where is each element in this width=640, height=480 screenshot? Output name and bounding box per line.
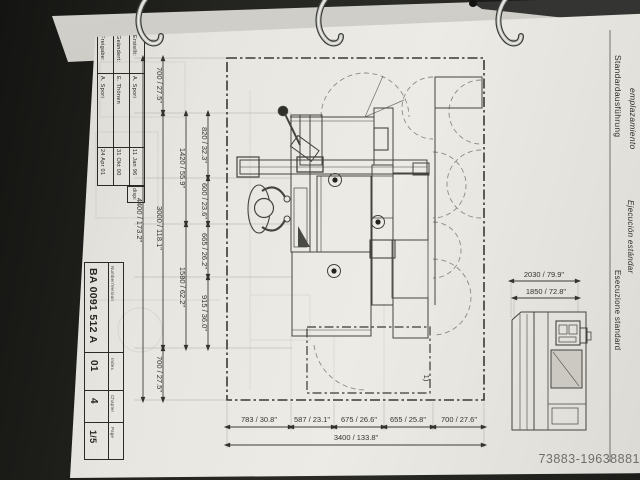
- punch-hole: [469, 0, 477, 7]
- dim-label-1420: 1420 / 55.9": [178, 148, 187, 189]
- document-number-label: Number/Version: [110, 266, 115, 301]
- dim-label-700-top: 700 / 27.5": [155, 67, 164, 103]
- dim-label-587: 587 / 23.1": [294, 415, 330, 424]
- subtitle-es: Ejecución estándar: [626, 200, 635, 273]
- rev-name-erstellt: A. Spori: [131, 76, 137, 98]
- machine-elevation: [512, 312, 591, 430]
- dim-label-675: 675 / 26.6": [341, 415, 377, 424]
- index-value: 01: [88, 360, 99, 372]
- operator-figure: [248, 185, 290, 233]
- dim-label-915: 915 / 36.0": [200, 295, 209, 331]
- rev-label-geaendert: Geändert:: [115, 35, 121, 62]
- rev-label-freigabe: Freigabe:: [99, 35, 105, 61]
- dim-label-700w: 700 / 27.6": [441, 415, 477, 424]
- rev-note: dispi: [131, 188, 137, 200]
- rev-name-geaendert: E. Thönen: [115, 76, 121, 104]
- dim-label-3400: 3400 / 133.8": [334, 433, 379, 442]
- title-de: Standardausführung: [613, 55, 623, 137]
- subtitle-it: Esecuzione standard: [613, 270, 622, 350]
- page-label: Page: [110, 427, 115, 438]
- chapter-value: 4: [88, 398, 99, 404]
- dimension-labels-horizontal: 783 / 30.8" 587 / 23.1" 675 / 26.6" 655 …: [241, 270, 566, 442]
- page-value: 1/5: [88, 430, 98, 443]
- dim-label-1580: 1580 / 62.2": [178, 267, 187, 308]
- door-swing-arcs: [314, 73, 481, 390]
- index-label: Index: [110, 358, 115, 370]
- rev-date-geaendert: 31 Okt 00: [115, 149, 121, 176]
- dim-label-655: 655 / 25.8": [390, 415, 426, 424]
- dim-label-4400: 4400 / 173.2": [135, 198, 144, 243]
- dim-label-3000: 3000 / 118.1": [155, 206, 164, 250]
- document-number: BA 0091 512 A: [87, 268, 99, 344]
- position-markers: [328, 174, 385, 278]
- rev-label-erstellt: Erstellt:: [131, 35, 137, 56]
- dim-label-2030: 2030 / 79.9": [524, 270, 565, 279]
- dim-label-665: 665 / 26.2": [200, 233, 209, 269]
- title-es: emplazamiento: [628, 88, 638, 150]
- photo-frame: 4400 / 173.2" 700 / 27.5" 3000 / 118.1" …: [0, 0, 640, 480]
- dim-label-783: 783 / 30.8": [241, 415, 277, 424]
- watermark-text: 73883-19638881: [534, 452, 640, 466]
- dim-label-1850: 1850 / 72.8": [526, 287, 567, 296]
- door-swing-radii: [365, 76, 404, 117]
- note-1-label: 1): [422, 375, 431, 382]
- dim-label-600: 600 / 23.6": [200, 183, 209, 219]
- dim-label-700-bottom: 700 / 27.5": [155, 356, 164, 392]
- document-page: 4400 / 173.2" 700 / 27.5" 3000 / 118.1" …: [0, 0, 640, 480]
- dim-label-820: 820 / 32.3": [200, 127, 209, 163]
- rev-date-erstellt: 11 Jan 96: [131, 149, 137, 175]
- chapter-label: Chapter: [110, 395, 115, 412]
- service-area-border: [307, 327, 430, 393]
- rev-name-freigabe: A. Spori: [99, 76, 105, 98]
- rev-date-freigabe: 24 Apr 01: [99, 149, 105, 175]
